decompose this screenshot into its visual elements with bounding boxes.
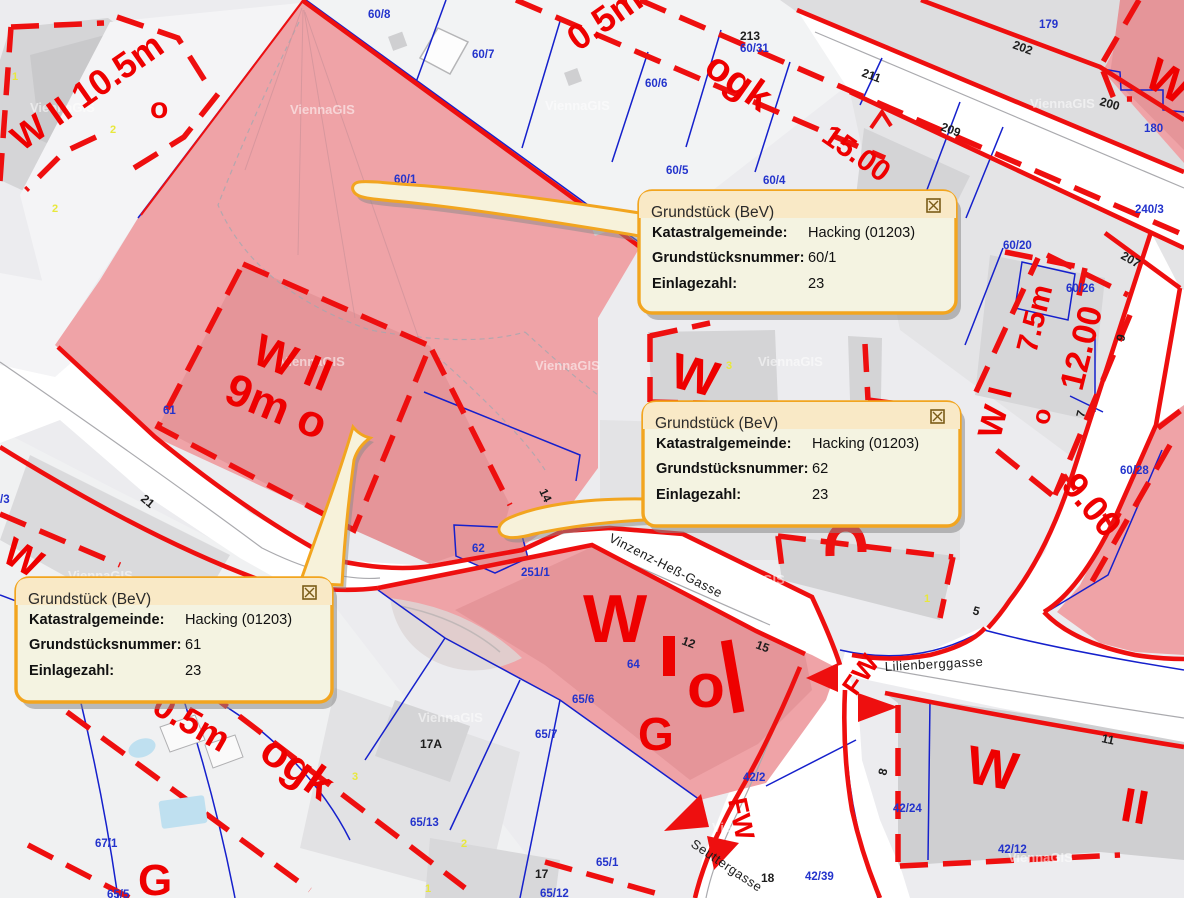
svg-text:65/12: 65/12	[540, 888, 569, 898]
svg-text:42/2: 42/2	[743, 772, 765, 784]
svg-text:Grundstücksnummer:: Grundstücksnummer:	[652, 250, 804, 266]
svg-text:ViennaGIS: ViennaGIS	[758, 354, 823, 369]
svg-text:17A: 17A	[420, 737, 442, 751]
svg-text:240/3: 240/3	[1135, 204, 1164, 216]
svg-text:65/5: 65/5	[107, 889, 130, 898]
svg-text:Katastralgemeinde:: Katastralgemeinde:	[656, 436, 791, 452]
svg-text:3: 3	[352, 771, 358, 783]
svg-text:Einlagezahl:: Einlagezahl:	[29, 663, 114, 679]
svg-text:65/1: 65/1	[596, 857, 619, 869]
svg-text:Grundstück (BeV): Grundstück (BeV)	[651, 204, 774, 221]
svg-text:/3: /3	[0, 494, 10, 506]
svg-text:60/5: 60/5	[666, 165, 689, 177]
svg-text:60/7: 60/7	[472, 49, 494, 61]
svg-text:67/1: 67/1	[95, 838, 118, 850]
svg-text:Grundstücksnummer:: Grundstücksnummer:	[656, 461, 808, 477]
svg-text:179: 179	[1039, 19, 1058, 31]
svg-text:Einlagezahl:: Einlagezahl:	[652, 276, 737, 292]
svg-text:65/13: 65/13	[410, 817, 439, 829]
svg-text:1: 1	[12, 71, 18, 83]
svg-text:17: 17	[535, 867, 549, 881]
svg-text:60/26: 60/26	[1066, 283, 1095, 295]
svg-text:180: 180	[1144, 123, 1163, 135]
svg-text:60/31: 60/31	[740, 43, 769, 55]
svg-text:18: 18	[761, 871, 775, 885]
svg-text:251/1: 251/1	[521, 567, 550, 579]
svg-text:62: 62	[812, 461, 828, 477]
svg-text:60/4: 60/4	[763, 175, 786, 187]
svg-text:213: 213	[740, 29, 760, 43]
svg-text:G: G	[138, 856, 172, 898]
svg-text:65/7: 65/7	[535, 729, 557, 741]
svg-text:W: W	[962, 735, 1023, 803]
svg-text:62: 62	[472, 543, 485, 555]
svg-text:1: 1	[425, 883, 431, 895]
svg-text:2: 2	[52, 203, 58, 215]
svg-text:Grundstück (BeV): Grundstück (BeV)	[655, 415, 778, 432]
svg-text:23: 23	[185, 663, 201, 679]
svg-text:2: 2	[461, 838, 467, 850]
svg-text:o: o	[150, 92, 168, 125]
svg-text:42/39: 42/39	[805, 871, 834, 883]
svg-text:ViennaGIS: ViennaGIS	[418, 710, 483, 725]
svg-text:42/24: 42/24	[893, 803, 922, 815]
svg-text:ViennaGIS: ViennaGIS	[535, 358, 600, 373]
svg-text:Hacking (01203): Hacking (01203)	[185, 612, 292, 628]
svg-text:65/6: 65/6	[572, 694, 594, 706]
svg-text:o: o	[687, 652, 725, 721]
svg-text:Hacking (01203): Hacking (01203)	[808, 225, 915, 241]
svg-text:60/28: 60/28	[1120, 465, 1149, 477]
svg-text:60/20: 60/20	[1003, 240, 1032, 252]
svg-text:23: 23	[812, 487, 828, 503]
svg-text:Grundstücksnummer:: Grundstücksnummer:	[29, 637, 181, 653]
svg-text:23: 23	[808, 276, 824, 292]
svg-text:2: 2	[110, 124, 116, 136]
svg-text:60/8: 60/8	[368, 9, 391, 21]
svg-text:61: 61	[163, 405, 176, 417]
svg-text:3: 3	[726, 360, 732, 372]
svg-text:60/6: 60/6	[645, 78, 667, 90]
svg-text:42/12: 42/12	[998, 844, 1027, 856]
svg-text:Katastralgemeinde:: Katastralgemeinde:	[652, 225, 787, 241]
svg-text:W: W	[583, 581, 648, 657]
svg-text:Einlagezahl:: Einlagezahl:	[656, 487, 741, 503]
svg-text:ViennaGIS: ViennaGIS	[290, 102, 355, 117]
svg-text:61: 61	[185, 637, 201, 653]
svg-text:Katastralgemeinde:: Katastralgemeinde:	[29, 612, 164, 628]
svg-text:Hacking (01203): Hacking (01203)	[812, 436, 919, 452]
svg-text:60/1: 60/1	[808, 250, 836, 266]
svg-text:ViennaGIS: ViennaGIS	[1030, 96, 1095, 111]
svg-text:64: 64	[627, 659, 640, 671]
svg-text:ViennaGIS: ViennaGIS	[720, 572, 785, 587]
svg-text:ViennaGIS: ViennaGIS	[545, 98, 610, 113]
svg-text:1: 1	[924, 593, 930, 605]
svg-text:Grundstück (BeV): Grundstück (BeV)	[28, 591, 151, 608]
svg-text:G: G	[638, 708, 674, 760]
